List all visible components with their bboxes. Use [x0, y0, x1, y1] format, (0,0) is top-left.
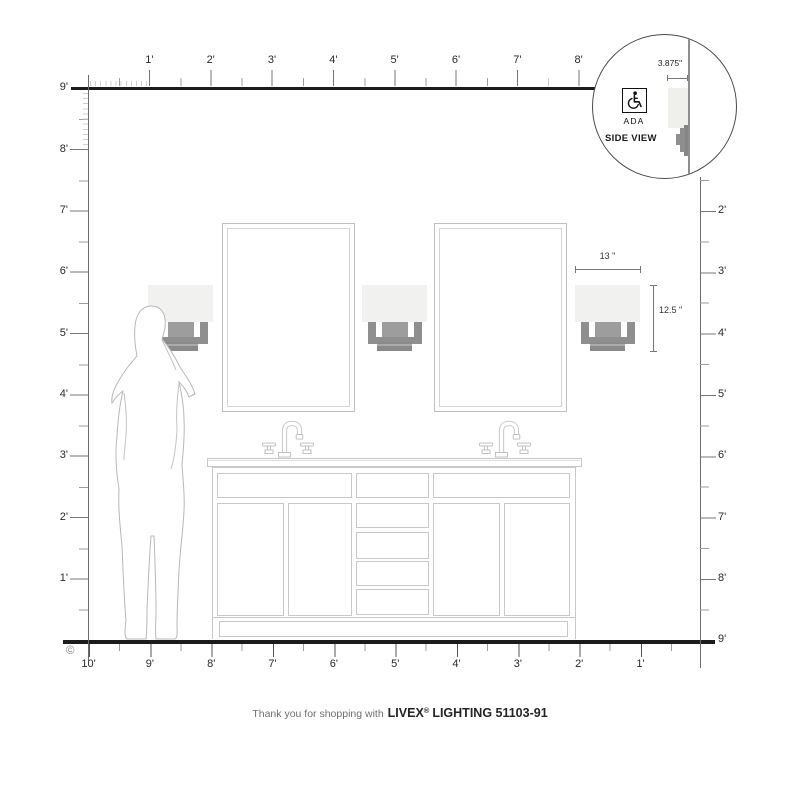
- bottom-ruler-half-ticks: [119, 644, 672, 651]
- ruler-label: 6': [303, 657, 364, 672]
- sconce-shade: [575, 285, 640, 322]
- vanity-door: [288, 503, 352, 616]
- side-view-label: SIDE VIEW: [605, 133, 657, 144]
- ruler-label: 3': [241, 53, 302, 68]
- bottom-ruler-labels: 10'9'8'7'6'5'4'3'2'1': [58, 657, 671, 672]
- top-ruler-inch-ticks: [90, 81, 147, 86]
- vanity-top-rail-right: [433, 473, 570, 499]
- height-dimension-label: 12.5 ": [659, 306, 682, 315]
- sconce-side-bracket: [676, 134, 681, 145]
- top-ruler-half-ticks: [119, 78, 550, 86]
- ceiling-line: [71, 87, 596, 91]
- footer-thanks-text: Thank you for shopping with: [252, 708, 383, 720]
- dimension-end-tick: [667, 75, 668, 81]
- top-ruler-labels: 1'2'3'4'5'6'7'8': [119, 53, 610, 68]
- ruler-label: 8': [548, 53, 609, 68]
- toe-kick-side: [575, 618, 576, 639]
- ruler-label: 7': [718, 487, 750, 548]
- ruler-label: 7': [36, 180, 68, 241]
- footer-caption: Thank you for shopping withLIVEX®LIGHTIN…: [0, 704, 800, 722]
- ruler-label: 4': [303, 53, 364, 68]
- ruler-label: 4': [36, 364, 68, 425]
- toe-kick-panel: [219, 621, 568, 638]
- person-scale-silhouette: [100, 300, 210, 645]
- ruler-label: 5': [36, 303, 68, 364]
- vanity-countertop: [207, 458, 582, 468]
- depth-dimension-label: 3.875": [650, 58, 690, 68]
- ruler-label: 2': [180, 53, 241, 68]
- vanity-top-rail-center: [356, 473, 429, 499]
- ruler-label: 3': [487, 657, 548, 672]
- ruler-label: 10': [58, 657, 119, 672]
- depth-dimension-line: [667, 78, 688, 79]
- ruler-label: 4': [718, 303, 750, 364]
- mirror-left: [222, 223, 355, 412]
- diagram-canvas: 13 " 12.5 ": [0, 0, 800, 800]
- sconce-shade: [362, 285, 427, 322]
- ruler-label: 2': [36, 487, 68, 548]
- ada-compliance-box: [622, 88, 647, 113]
- ruler-label: 9': [718, 609, 750, 670]
- height-dimension-line: [653, 285, 654, 352]
- ruler-label: 6': [718, 425, 750, 486]
- right-ruler-half-ticks: [700, 180, 709, 611]
- faucet-right: [474, 417, 536, 458]
- dimension-end-tick: [575, 266, 576, 273]
- toe-kick-side: [212, 618, 213, 639]
- ruler-label: 3': [36, 425, 68, 486]
- left-ruler-labels: 9'8'7'6'5'4'3'2'1': [36, 57, 68, 609]
- dimension-end-tick: [640, 266, 641, 273]
- registered-trademark-symbol: ®: [424, 706, 430, 715]
- vanity-drawer: [356, 561, 429, 586]
- brand-name: LIVEX: [388, 706, 424, 720]
- ruler-label: 9': [119, 657, 180, 672]
- ruler-label: 8': [718, 548, 750, 609]
- mirror-left-inner-frame: [227, 228, 350, 407]
- ruler-label: 7': [487, 53, 548, 68]
- sconce-pedestal-highlight: [377, 344, 412, 347]
- vanity-top-rail-left: [217, 473, 352, 499]
- side-view-inset-circle: 3.875" ADA SIDE VIEW: [592, 34, 737, 179]
- vanity-door: [217, 503, 284, 616]
- ada-wheelchair-icon: [623, 89, 645, 111]
- ruler-label: 5': [718, 364, 750, 425]
- sconce-right: [575, 285, 640, 351]
- ruler-label: 8': [181, 657, 242, 672]
- sconce-side-shade: [668, 88, 688, 128]
- width-dimension-line: [575, 269, 641, 270]
- vanity-door: [504, 503, 570, 616]
- right-ruler-labels: 2'3'4'5'6'7'8'9': [718, 180, 750, 671]
- sconce-pedestal-highlight: [590, 344, 625, 347]
- ruler-label: 7': [242, 657, 303, 672]
- ruler-label: 4': [426, 657, 487, 672]
- mirror-right: [434, 223, 567, 412]
- vanity-drawer: [356, 532, 429, 559]
- ruler-label: 2': [549, 657, 610, 672]
- vanity-drawer: [356, 503, 429, 528]
- ruler-label: 1': [119, 53, 180, 68]
- left-ruler-inch-ticks: [83, 93, 88, 149]
- ruler-label: 8': [36, 119, 68, 180]
- countertop-edge-line: [208, 460, 580, 461]
- ruler-label: 2': [718, 180, 750, 241]
- sconce-middle: [362, 285, 427, 351]
- ruler-label: 3': [718, 241, 750, 302]
- width-dimension-label: 13 ": [575, 252, 640, 261]
- ruler-label: 1': [36, 548, 68, 609]
- ruler-label: 1': [610, 657, 671, 672]
- faucet-left: [257, 417, 319, 458]
- ruler-label: 9': [36, 57, 68, 118]
- product-number: LIGHTING 51103-91: [432, 706, 547, 720]
- vanity-door: [433, 503, 500, 616]
- ruler-label: 6': [425, 53, 486, 68]
- left-ruler-half-ticks: [79, 119, 89, 611]
- dimension-end-tick: [650, 351, 657, 352]
- copyright-symbol: ©: [66, 645, 74, 657]
- ruler-label: 6': [36, 241, 68, 302]
- ruler-label: 5': [365, 657, 426, 672]
- vanity-drawer: [356, 589, 429, 615]
- dimension-end-tick: [650, 285, 657, 286]
- mirror-right-inner-frame: [439, 228, 562, 407]
- ada-label: ADA: [618, 116, 650, 126]
- dimension-end-tick: [687, 75, 688, 81]
- ruler-label: 5': [364, 53, 425, 68]
